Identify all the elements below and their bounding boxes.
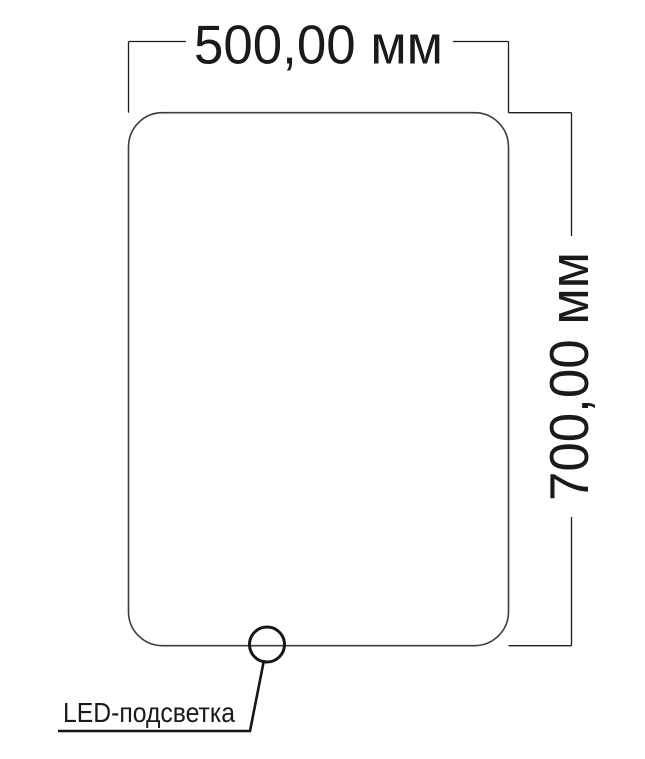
mirror-dimension-diagram: 500,00 мм 700,00 мм LED-подсветка [0, 0, 645, 759]
width-dimension-label: 500,00 мм [194, 14, 443, 76]
led-callout-label: LED-подсветка [63, 697, 235, 728]
dimension-drawing-canvas: 500,00 мм 700,00 мм LED-подсветка [0, 0, 645, 759]
led-callout-circle [250, 627, 285, 662]
mirror-outline [129, 113, 509, 646]
height-dimension-label: 700,00 мм [538, 252, 600, 501]
